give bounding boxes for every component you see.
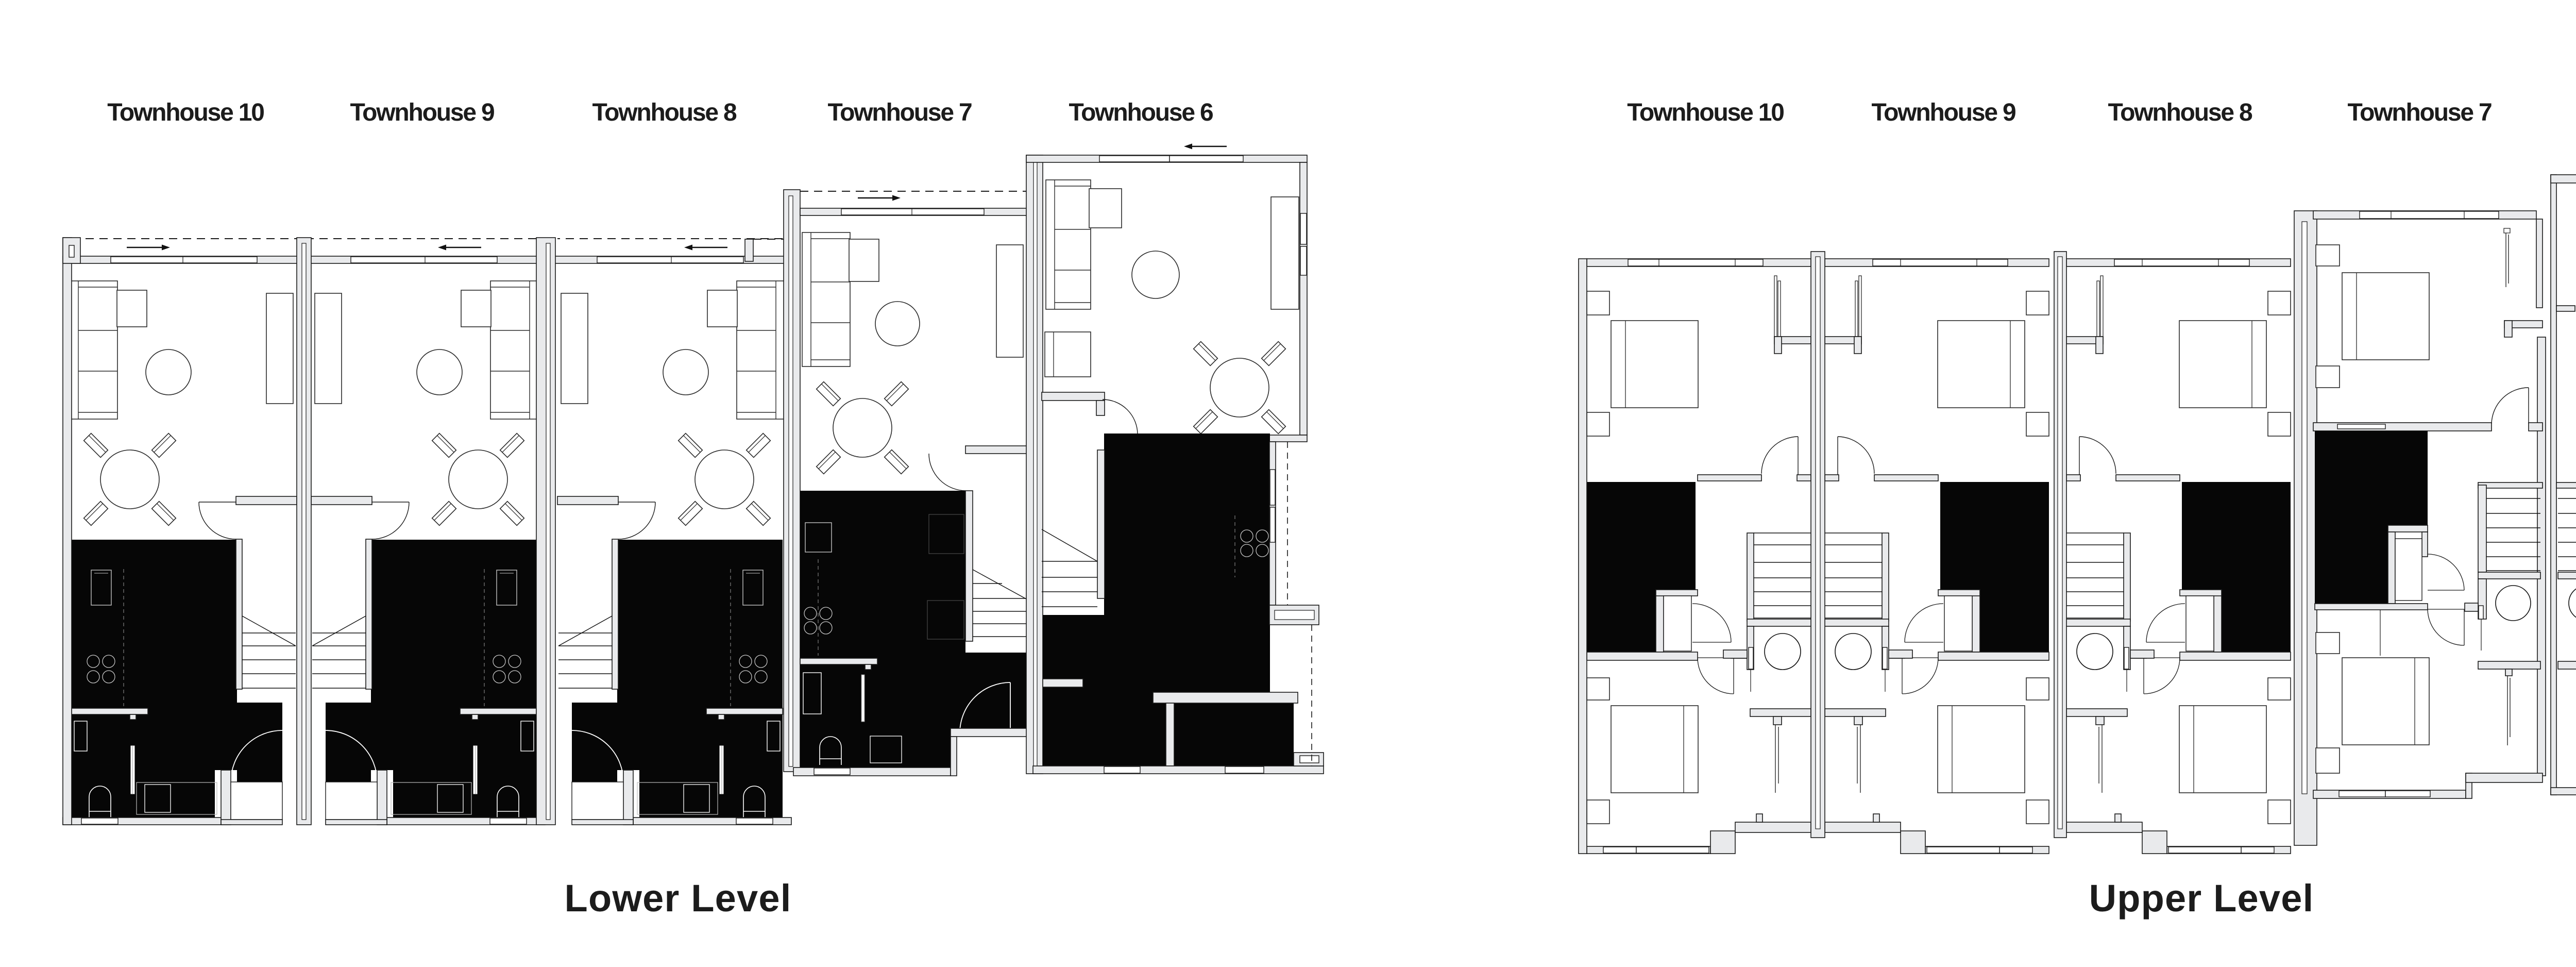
svg-text:Townhouse 10: Townhouse 10 — [1627, 99, 1784, 126]
svg-text:Townhouse 6: Townhouse 6 — [1069, 99, 1213, 126]
svg-text:Lower Level: Lower Level — [565, 877, 792, 920]
svg-text:Townhouse 9: Townhouse 9 — [1872, 99, 2015, 126]
svg-text:Townhouse 9: Townhouse 9 — [350, 99, 494, 126]
svg-text:Townhouse 10: Townhouse 10 — [107, 99, 264, 126]
svg-text:Townhouse 8: Townhouse 8 — [592, 99, 737, 126]
svg-text:Townhouse 8: Townhouse 8 — [2108, 99, 2252, 126]
svg-text:Townhouse 7: Townhouse 7 — [2348, 99, 2492, 126]
svg-text:Upper Level: Upper Level — [2089, 877, 2314, 920]
svg-text:Townhouse 7: Townhouse 7 — [828, 99, 972, 126]
